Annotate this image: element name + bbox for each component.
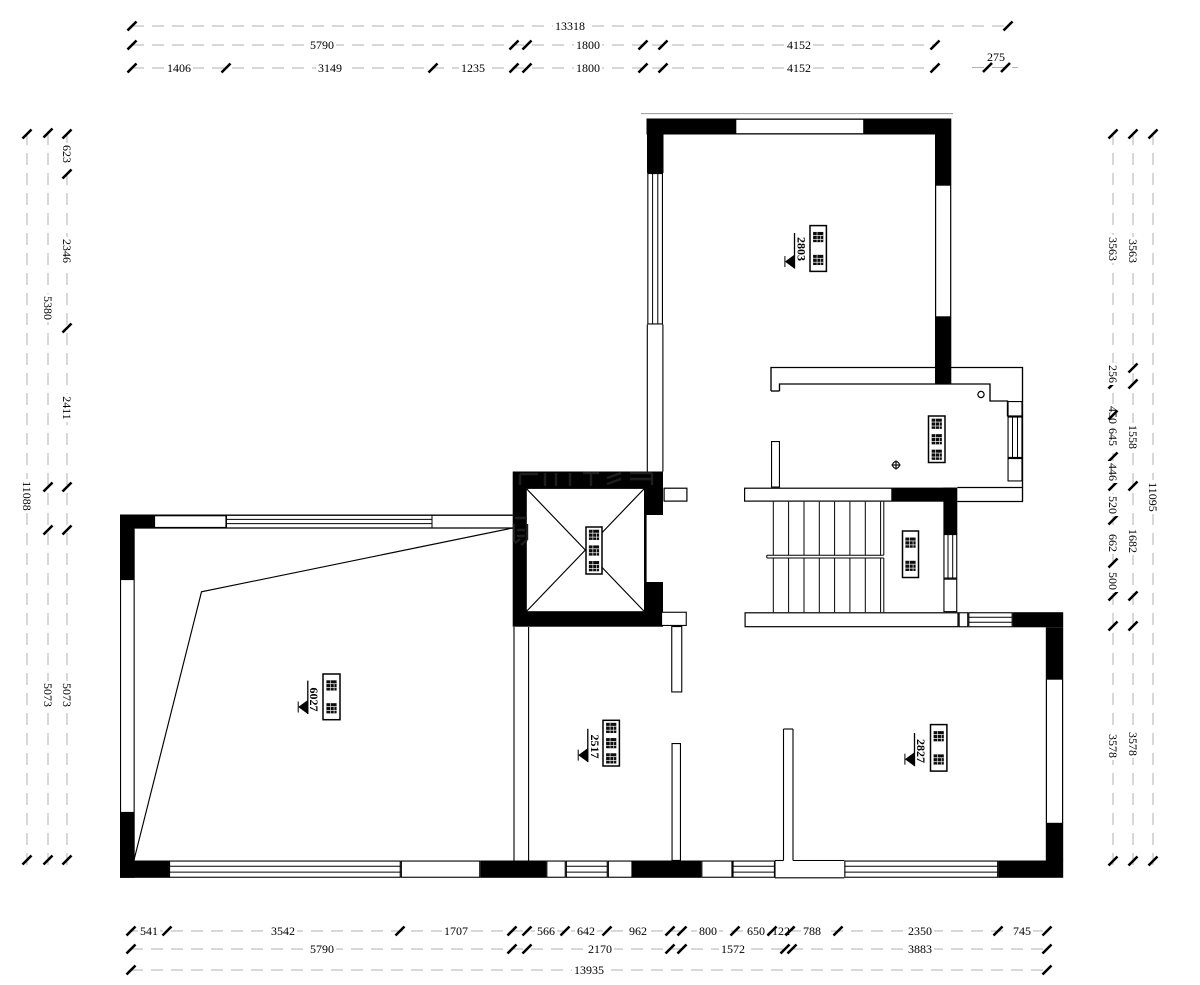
svg-text:1682: 1682 — [1126, 529, 1140, 553]
svg-text:2517: 2517 — [588, 735, 602, 759]
svg-text:3563: 3563 — [1106, 237, 1120, 261]
svg-text:1235: 1235 — [461, 61, 485, 75]
svg-text:5073: 5073 — [41, 683, 55, 707]
svg-text:650: 650 — [747, 924, 765, 938]
svg-text:5380: 5380 — [41, 296, 55, 320]
svg-text:13318: 13318 — [555, 19, 585, 33]
svg-text:11095: 11095 — [1146, 482, 1160, 512]
svg-text:4152: 4152 — [787, 38, 811, 52]
svg-text:4152: 4152 — [787, 61, 811, 75]
svg-text:5073: 5073 — [60, 683, 74, 707]
svg-text:2350: 2350 — [908, 924, 932, 938]
svg-text:1558: 1558 — [1126, 425, 1140, 449]
svg-text:1707: 1707 — [444, 924, 468, 938]
svg-text:2803: 2803 — [795, 237, 809, 261]
svg-text:3542: 3542 — [271, 924, 295, 938]
svg-text:962: 962 — [629, 924, 647, 938]
svg-text:642: 642 — [577, 924, 595, 938]
svg-text:520: 520 — [1106, 496, 1120, 514]
svg-text:800: 800 — [699, 924, 717, 938]
svg-text:5790: 5790 — [310, 942, 334, 956]
svg-text:275: 275 — [987, 50, 1005, 64]
svg-text:3563: 3563 — [1126, 239, 1140, 263]
svg-text:2170: 2170 — [588, 942, 612, 956]
svg-text:256: 256 — [1106, 365, 1120, 383]
svg-text:3883: 3883 — [908, 942, 932, 956]
svg-text:2411: 2411 — [60, 396, 74, 420]
svg-text:623: 623 — [60, 145, 74, 163]
svg-text:11088: 11088 — [20, 481, 34, 511]
svg-text:1800: 1800 — [576, 38, 600, 52]
svg-text:662: 662 — [1106, 534, 1120, 552]
svg-text:566: 566 — [537, 924, 555, 938]
svg-text:6027: 6027 — [307, 688, 321, 712]
svg-text:3149: 3149 — [318, 61, 342, 75]
svg-text:1406: 1406 — [167, 61, 191, 75]
svg-text:645: 645 — [1106, 428, 1120, 446]
svg-text:2346: 2346 — [60, 239, 74, 263]
svg-text:3578: 3578 — [1106, 734, 1120, 758]
svg-text:5790: 5790 — [310, 38, 334, 52]
svg-text:3578: 3578 — [1126, 732, 1140, 756]
svg-text:2827: 2827 — [914, 739, 928, 763]
svg-text:541: 541 — [140, 924, 158, 938]
svg-text:446: 446 — [1106, 463, 1120, 481]
svg-text:13935: 13935 — [574, 963, 604, 977]
svg-text:745: 745 — [1013, 924, 1031, 938]
svg-text:1572: 1572 — [721, 942, 745, 956]
svg-text:788: 788 — [803, 924, 821, 938]
svg-text:122: 122 — [772, 924, 790, 938]
svg-text:500: 500 — [1106, 572, 1120, 590]
svg-text:1800: 1800 — [576, 61, 600, 75]
